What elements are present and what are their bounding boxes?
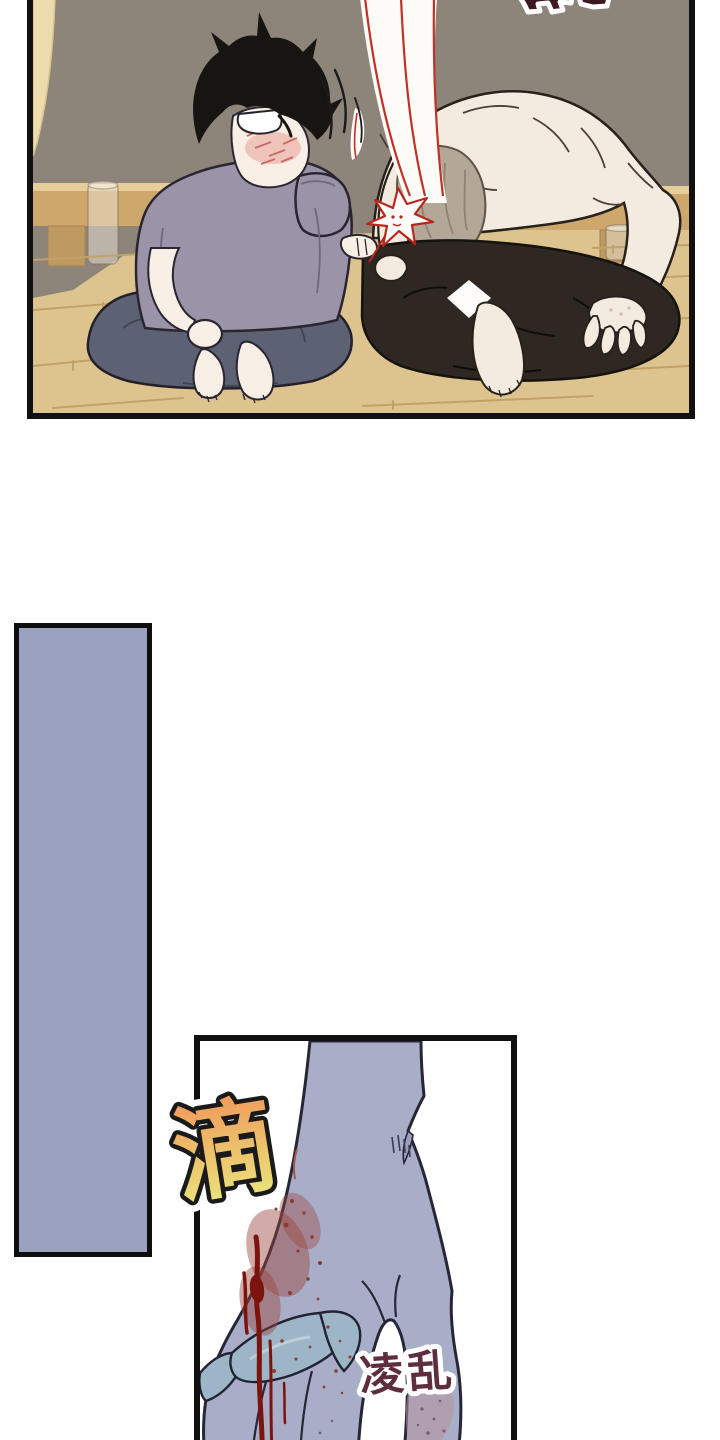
burst-dot — [391, 215, 394, 218]
comic-page: 滴 滴 滴 凌乱 凌乱 — [0, 0, 720, 1440]
glass-cup-left — [88, 181, 118, 264]
glasses-lens — [238, 110, 282, 134]
burst-dot — [399, 215, 402, 218]
panel-bottom — [194, 1035, 517, 1440]
panel-top-art — [33, 0, 689, 413]
panel-spacer-blue — [14, 623, 152, 1257]
bench-leg — [48, 226, 85, 266]
bruise-patch — [406, 1382, 454, 1440]
panel-top — [27, 0, 695, 419]
panel-bottom-art — [200, 1041, 511, 1440]
